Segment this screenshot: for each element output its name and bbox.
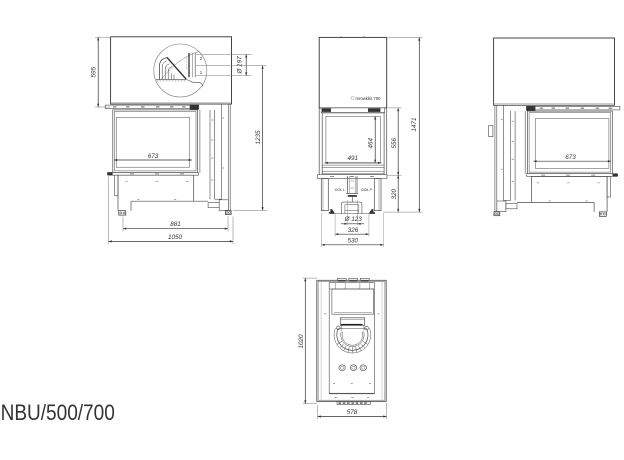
svg-text:1020: 1020 bbox=[298, 334, 305, 349]
svg-text:556: 556 bbox=[391, 137, 398, 148]
svg-text:2: 2 bbox=[200, 56, 203, 61]
svg-text:1050: 1050 bbox=[168, 234, 183, 241]
svg-text:1235: 1235 bbox=[255, 130, 262, 145]
svg-text:mrowkbit 790: mrowkbit 790 bbox=[356, 96, 382, 101]
svg-text:Ø 123: Ø 123 bbox=[344, 216, 363, 223]
svg-text:673: 673 bbox=[565, 154, 576, 161]
svg-text:464: 464 bbox=[367, 137, 374, 148]
svg-text:NBU/500/700: NBU/500/700 bbox=[1, 400, 115, 425]
svg-text:530: 530 bbox=[348, 237, 359, 244]
svg-text:320: 320 bbox=[391, 188, 398, 199]
svg-text:1: 1 bbox=[200, 70, 203, 75]
svg-text:326: 326 bbox=[348, 227, 359, 234]
svg-text:1471: 1471 bbox=[411, 117, 418, 131]
svg-text:595: 595 bbox=[91, 66, 98, 77]
svg-text:Ø 197: Ø 197 bbox=[237, 56, 244, 75]
svg-text:578: 578 bbox=[347, 409, 358, 416]
svg-text:DÓŁ L: DÓŁ L bbox=[335, 187, 345, 192]
svg-text:673: 673 bbox=[148, 153, 159, 160]
svg-text:DÓŁ P: DÓŁ P bbox=[361, 187, 372, 192]
svg-text:491: 491 bbox=[348, 155, 359, 162]
svg-text:881: 881 bbox=[170, 221, 181, 228]
